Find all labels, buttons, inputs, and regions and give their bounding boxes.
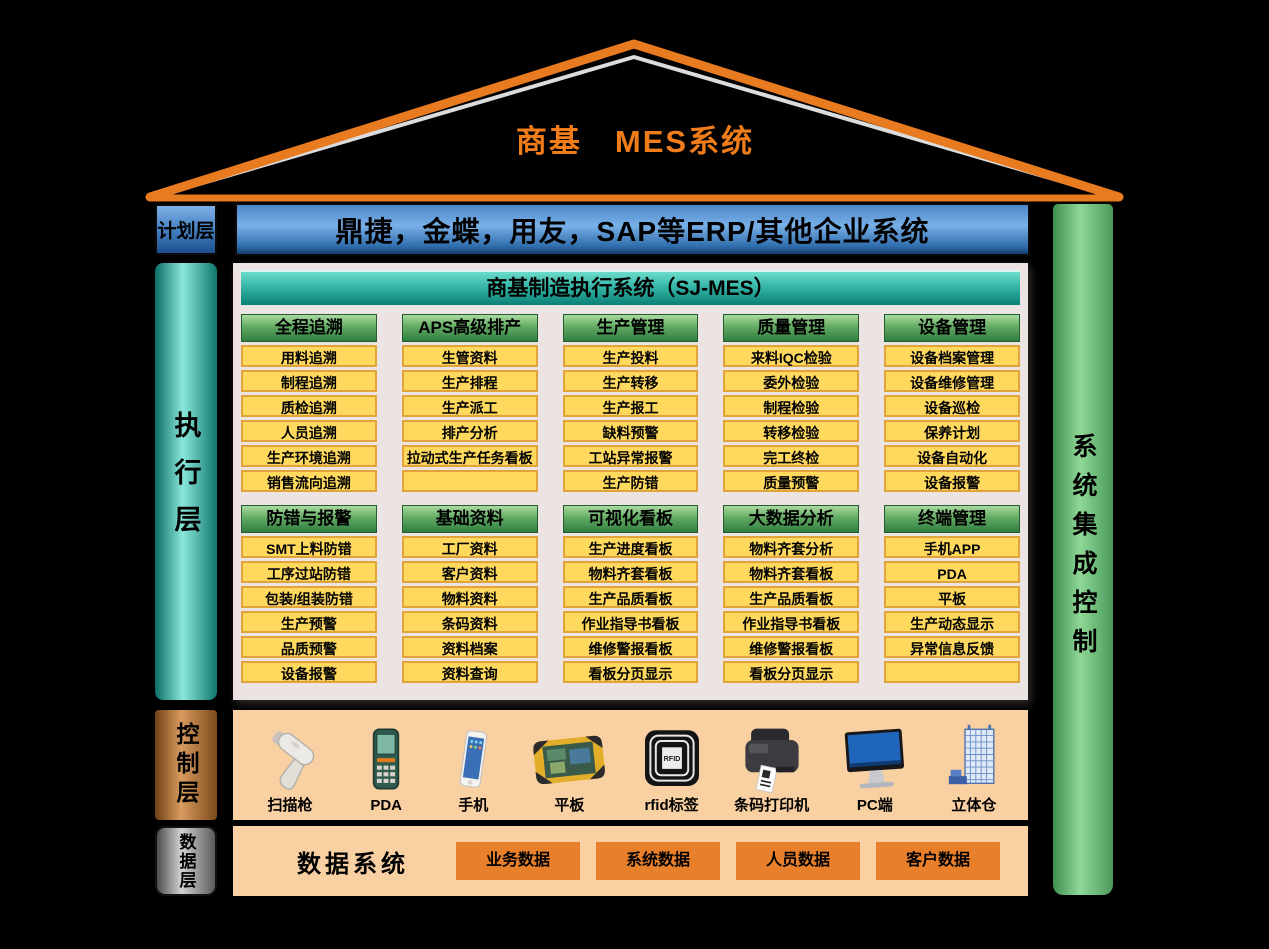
sjmes-header: 商基制造执行系统（SJ-MES） <box>241 270 1020 305</box>
module-header: 质量管理 <box>723 314 859 342</box>
feature-box: 生产品质看板 <box>723 586 859 608</box>
layer-label-planning: 计划层 <box>155 204 217 255</box>
feature-box-empty <box>402 470 538 492</box>
module-column: APS高级排产生管资料生产排程生产派工排产分析拉动式生产任务看板 <box>402 314 538 492</box>
module-column: 全程追溯用料追溯制程追溯质检追溯人员追溯生产环境追溯销售流向追溯 <box>241 314 377 492</box>
feature-box: 设备维修管理 <box>884 370 1020 392</box>
integration-control-bar: 系统集成控制 <box>1053 204 1113 895</box>
execution-panel: 商基制造执行系统（SJ-MES） 全程追溯用料追溯制程追溯质检追溯人员追溯生产环… <box>233 263 1028 700</box>
feature-box: 设备报警 <box>241 661 377 683</box>
module-column: 生产管理生产投料生产转移生产报工缺料预警工站异常报警生产防错 <box>563 314 699 492</box>
feature-box: 物料齐套看板 <box>723 561 859 583</box>
feature-box: 生产预警 <box>241 611 377 633</box>
diagram-title: 商基 MES系统 <box>385 116 885 161</box>
tablet-icon <box>527 721 611 797</box>
device-rfid: RFID rfid标签 <box>636 714 708 818</box>
module-header: 防错与报警 <box>241 505 377 533</box>
feature-box: 保养计划 <box>884 420 1020 442</box>
feature-box: 生产排程 <box>402 370 538 392</box>
feature-box: 委外检验 <box>723 370 859 392</box>
feature-box: 制程追溯 <box>241 370 377 392</box>
device-label: rfid标签 <box>644 797 698 818</box>
device-label: 平板 <box>554 797 584 818</box>
feature-box: 排产分析 <box>402 420 538 442</box>
feature-box-empty <box>884 661 1020 683</box>
feature-box: 生产环境追溯 <box>241 445 377 467</box>
rfid-icon: RFID <box>636 721 708 797</box>
module-header: 基础资料 <box>402 505 538 533</box>
feature-box: 设备档案管理 <box>884 345 1020 367</box>
feature-box: 物料齐套分析 <box>723 536 859 558</box>
svg-text:RFID: RFID <box>663 754 680 763</box>
feature-box: 生管资料 <box>402 345 538 367</box>
module-column: 基础资料工厂资料客户资料物料资料条码资料资料档案资料查询 <box>402 505 538 683</box>
layer-label-control: 控制层 <box>155 710 217 820</box>
device-label: PDA <box>370 797 402 818</box>
feature-box: 完工终检 <box>723 445 859 467</box>
device-label: PC端 <box>857 797 893 818</box>
feature-box: 拉动式生产任务看板 <box>402 445 538 467</box>
feature-box: 品质预警 <box>241 636 377 658</box>
feature-box: 销售流向追溯 <box>241 470 377 492</box>
feature-box: 平板 <box>884 586 1020 608</box>
device-pda: PDA <box>353 714 419 818</box>
device-barcode-printer: 条码打印机 <box>732 714 812 818</box>
feature-box: 维修警报看板 <box>563 636 699 658</box>
feature-box: 质量预警 <box>723 470 859 492</box>
feature-box: 设备巡检 <box>884 395 1020 417</box>
data-panel: 数据系统 业务数据 系统数据 人员数据 客户数据 <box>233 826 1028 896</box>
feature-box: 生产防错 <box>563 470 699 492</box>
module-header: 终端管理 <box>884 505 1020 533</box>
feature-box: 客户资料 <box>402 561 538 583</box>
module-header: 设备管理 <box>884 314 1020 342</box>
module-column: 设备管理设备档案管理设备维修管理设备巡检保养计划设备自动化设备报警 <box>884 314 1020 492</box>
module-column: 大数据分析物料齐套分析物料齐套看板生产品质看板作业指导书看板维修警报看板看板分页… <box>723 505 859 683</box>
feature-box: 设备报警 <box>884 470 1020 492</box>
warehouse-icon <box>938 721 1010 797</box>
module-header: 大数据分析 <box>723 505 859 533</box>
feature-box: 异常信息反馈 <box>884 636 1020 658</box>
pda-icon <box>353 721 419 797</box>
feature-box: 资料档案 <box>402 636 538 658</box>
feature-box: 用料追溯 <box>241 345 377 367</box>
feature-box: 制程检验 <box>723 395 859 417</box>
feature-box: 生产进度看板 <box>563 536 699 558</box>
device-label: 扫描枪 <box>268 797 313 818</box>
data-system-title: 数据系统 <box>297 844 409 879</box>
phone-icon <box>443 721 503 797</box>
layer-label-data: 数据层 <box>155 826 217 896</box>
module-row: 防错与报警SMT上料防错工序过站防错包装/组装防错生产预警品质预警设备报警基础资… <box>241 505 1020 683</box>
feature-box: 物料齐套看板 <box>563 561 699 583</box>
feature-box: 看板分页显示 <box>723 661 859 683</box>
feature-box: 人员追溯 <box>241 420 377 442</box>
feature-box: 生产动态显示 <box>884 611 1020 633</box>
module-header: 全程追溯 <box>241 314 377 342</box>
device-label: 条码打印机 <box>734 797 809 818</box>
feature-box: 生产品质看板 <box>563 586 699 608</box>
feature-box: 缺料预警 <box>563 420 699 442</box>
module-header: 生产管理 <box>563 314 699 342</box>
printer-icon <box>732 721 812 797</box>
data-boxes: 业务数据 系统数据 人员数据 客户数据 <box>456 842 1000 880</box>
mes-architecture-diagram: 商基 MES系统 计划层 鼎捷，金蝶，用友，SAP等ERP/其他企业系统 执行层… <box>0 0 1269 949</box>
control-panel: 扫描枪 PDA <box>233 710 1028 820</box>
device-phone: 手机 <box>443 714 503 818</box>
feature-box: 手机APP <box>884 536 1020 558</box>
device-warehouse: 立体仓 <box>938 714 1010 818</box>
feature-box: 生产投料 <box>563 345 699 367</box>
data-box: 人员数据 <box>736 842 860 880</box>
device-pc: PC端 <box>836 714 914 818</box>
feature-box: 包装/组装防错 <box>241 586 377 608</box>
data-box: 客户数据 <box>876 842 1000 880</box>
feature-box: 转移检验 <box>723 420 859 442</box>
device-label: 手机 <box>458 797 488 818</box>
pc-icon <box>836 721 914 797</box>
feature-box: 条码资料 <box>402 611 538 633</box>
module-row: 全程追溯用料追溯制程追溯质检追溯人员追溯生产环境追溯销售流向追溯APS高级排产生… <box>241 314 1020 492</box>
feature-box: 工厂资料 <box>402 536 538 558</box>
scanner-icon <box>251 721 329 797</box>
layer-label-execution: 执行层 <box>155 263 217 700</box>
module-header: APS高级排产 <box>402 314 538 342</box>
feature-box: 物料资料 <box>402 586 538 608</box>
feature-box: 设备自动化 <box>884 445 1020 467</box>
feature-box: 来料IQC检验 <box>723 345 859 367</box>
feature-box: 作业指导书看板 <box>723 611 859 633</box>
module-header: 可视化看板 <box>563 505 699 533</box>
data-box: 系统数据 <box>596 842 720 880</box>
feature-box: 看板分页显示 <box>563 661 699 683</box>
erp-systems-bar: 鼎捷，金蝶，用友，SAP等ERP/其他企业系统 <box>235 203 1030 256</box>
device-tablet: 平板 <box>527 714 611 818</box>
feature-box: 维修警报看板 <box>723 636 859 658</box>
feature-box: PDA <box>884 561 1020 583</box>
module-column: 质量管理来料IQC检验委外检验制程检验转移检验完工终检质量预警 <box>723 314 859 492</box>
module-column: 可视化看板生产进度看板物料齐套看板生产品质看板作业指导书看板维修警报看板看板分页… <box>563 505 699 683</box>
module-column: 终端管理手机APPPDA平板生产动态显示异常信息反馈 <box>884 505 1020 683</box>
device-label: 立体仓 <box>951 797 996 818</box>
feature-box: 作业指导书看板 <box>563 611 699 633</box>
feature-box: 生产报工 <box>563 395 699 417</box>
device-scanner: 扫描枪 <box>251 714 329 818</box>
data-box: 业务数据 <box>456 842 580 880</box>
module-column: 防错与报警SMT上料防错工序过站防错包装/组装防错生产预警品质预警设备报警 <box>241 505 377 683</box>
feature-box: 生产派工 <box>402 395 538 417</box>
feature-box: 工站异常报警 <box>563 445 699 467</box>
feature-box: 资料查询 <box>402 661 538 683</box>
feature-box: SMT上料防错 <box>241 536 377 558</box>
exec-grid: 全程追溯用料追溯制程追溯质检追溯人员追溯生产环境追溯销售流向追溯APS高级排产生… <box>241 314 1020 683</box>
feature-box: 质检追溯 <box>241 395 377 417</box>
feature-box: 生产转移 <box>563 370 699 392</box>
roof-outline <box>0 0 1269 215</box>
feature-box: 工序过站防错 <box>241 561 377 583</box>
